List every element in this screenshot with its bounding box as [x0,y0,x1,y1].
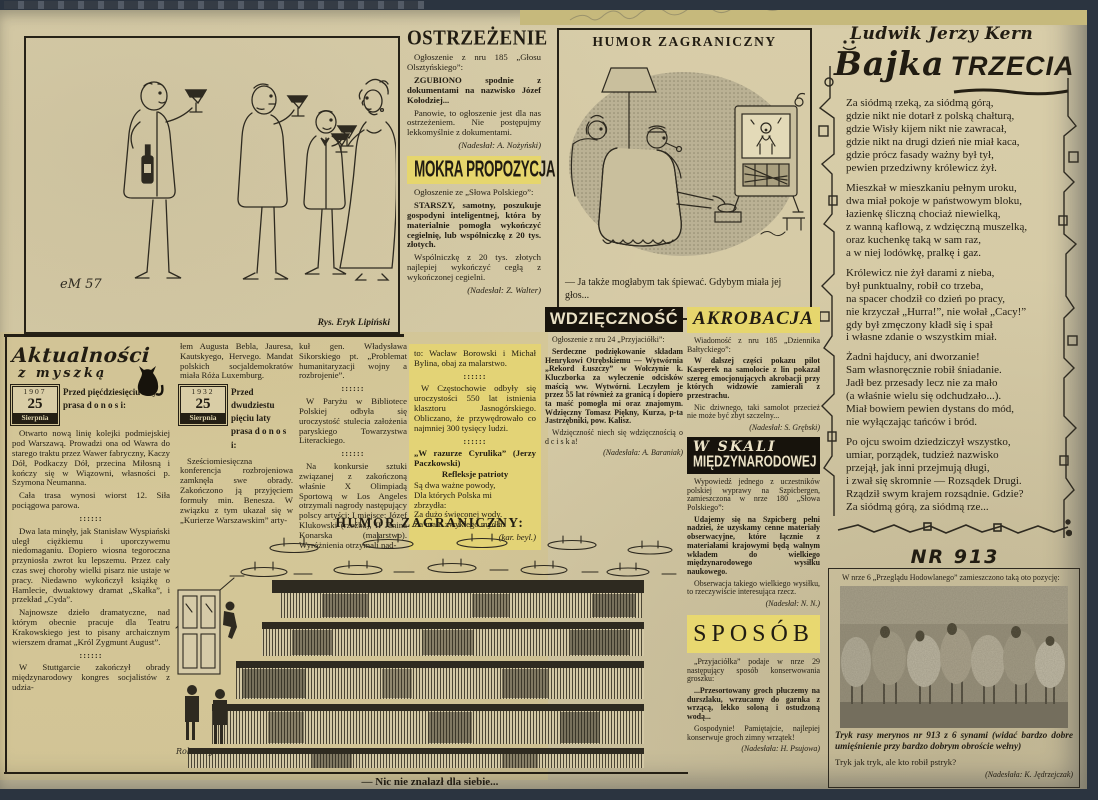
cartoon-credit: Rys. Eryk Lipiński [318,318,390,328]
aktualnosci-col2: łem Augusta Bebla, Jauresa, Kautskyego, … [180,342,293,528]
akrobacja-p2: Nic dziwnego, taki samolot przecież nie … [687,404,820,421]
akrobacja-intro: Wiadomość z nru 185 „Dziennika Bałtyckie… [687,337,820,354]
col1-p2: Cała trasa wynosi wiorst 12. Siła pociąg… [12,491,170,511]
mokra-title: MOKRA PROPOZYCJA [414,157,555,183]
wdziecznosc-credit: (Nadesłała: A. Baraniak) [545,449,683,458]
col2-p2: Sześciomiesięczna konferencja rozbrojeni… [180,457,293,526]
ostrzezenie-title: OSTRZEŻENIE [407,27,541,51]
sposob-credit: (Nadesłała: H. Psujowa) [687,745,820,754]
date-badge: 1932 25 Sierpnia [180,386,226,424]
humor-tv-box: HUMOR ZAGRANICZNY [557,28,812,320]
wdziecznosc-title: WDZIĘCZNOŚĆ [545,307,683,332]
col2-p1: łem Augusta Bebla, Jauresa, Kautskyego, … [180,342,293,381]
mokra-body: Wspólniczkę z 20 tys. złotych najlepiej … [407,253,541,282]
date-badge-row-1932: 1932 25 Sierpnia Przed dwudziestu pięciu… [180,386,293,451]
store-cartoon-caption: — Nic nie znalazł dla siebie... [250,776,610,788]
w-skali-title-line2: MIĘDZYNARODOWEJ [693,454,816,471]
smiley-face-icon [840,38,860,52]
separator: :::::: [12,514,170,524]
col4-p1: to: Wacław Borowski i Michał Bylina, oba… [414,349,536,369]
zigzag-bottom-icon [836,520,1072,538]
verse-subtitle: Refleksje patrioty [414,470,536,480]
newspaper-scan-page: eM 57 Rys. Eryk Lipiński OSTRZEŻENIE Ogł… [0,0,1098,800]
col1-p4: Najnowsze dzieło dramatyczne, nad którym… [12,608,170,647]
wdziecznosc-p2: Wdzięczność niech się wdzięcznością o d … [545,429,683,446]
w-skali-credit: (Nadesłał: N. N.) [687,600,820,609]
mokra-credit: (Nadesłał: Z. Walter) [407,286,541,296]
stanza-4: Żadni hajducy, ani dworzanie! Sam własno… [846,351,1062,429]
w-skali-p2: Udajemy się na Szpicberg pełni nadziei, … [687,516,820,577]
ostrzezenie-credit: (Nadesłał: A. Nożyński) [407,141,541,151]
wdziecznosc-p1: Serdeczne podziękowanie składam Henrykow… [545,348,683,426]
horizontal-rule-top [4,334,404,337]
ostrzezenie-body: Panowie, to ogłoszenie jest dla nas ostr… [407,109,541,138]
bajka-poem: Za siódmą rzeką, za siódmą górą, gdzie n… [846,97,1062,514]
newspaper-clipping: eM 57 Rys. Eryk Lipiński OSTRZEŻENIE Ogł… [0,10,1087,789]
store-artist-signature: Robt Day [175,747,214,756]
col1-p3: Dwa lata minęły, jak Stanisław Wyspiańsk… [12,527,170,606]
sposob-title: SPOSÓB [687,615,820,653]
sposob-p1: „Przyjaciółka” podaje w nrze 29 następuj… [687,658,820,684]
bajka-section: Ludwik Jerzy Kern BajkaTRZECIA Za siódmą… [820,24,1088,521]
cat-silhouette-icon [134,362,164,400]
badge-day: 25 [181,397,225,412]
w-skali-title-box: W SKALI MIĘDZYNARODOWEJ [687,437,820,474]
akrobacja-p1: W dalszej części pokazu pilot Kasperek n… [687,357,820,400]
ostrzezenie-section: OSTRZEŻENIE Ogłoszenie z nru 185 „Głosu … [407,28,541,299]
mokra-intro: Ogłoszenie ze „Słowa Polskiego”: [407,188,541,198]
col4-p2: W Częstochowie odbyły się uroczystości 5… [414,384,536,433]
nr913-punchline: Tryk jak tryk, ale kto robił pstryk? [835,758,1073,768]
separator: :::::: [299,384,407,394]
stanza-1: Za siódmą rzeką, za siódmą górą, gdzie n… [846,97,1062,175]
nr913-intro: W nrze 6 „Przeglądu Hodowlanego” zamiesz… [835,574,1073,583]
humor-store-header: HUMOR ZAGRANICZNY: [280,515,580,531]
col1-p1: Otwarto nową linię kolejki podmiejskiej … [12,429,170,488]
w-skali-p1: Wypowiedź jednego z uczestników polskiej… [687,478,820,513]
verse-title: „W razurze Cyrulika” (Jerzy Paczkowski) [414,449,536,469]
nr913-title: NR 913 [860,546,1050,568]
aktualnosci-logo-line2: z myszką [18,367,107,382]
aktualnosci-logo-line1: Aktualności [11,344,151,367]
vertical-rule-left [5,336,7,772]
artist-monogram: eM 57 [60,277,102,292]
aktualnosci-col1: Aktualności z myszką 1907 25 Sierpnia Pr… [12,342,170,696]
stanza-3: Królewicz nie żył darami z nieba, był pu… [846,267,1062,345]
toast-cartoon-drawing: eM 57 [26,38,396,306]
cut-off-header-strip [4,1,424,9]
pencil-handwriting-icon [560,10,920,25]
wdziecznosc-intro: Ogłoszenie z nru 24 „Przyjaciółki”: [545,336,683,345]
aktualnosci-logo: Aktualności z myszką [12,344,170,381]
sheep-photo [840,586,1068,728]
title-underline-icon [952,88,1072,96]
col1-p5: W Stuttgarcie zakończył obrady międzynar… [12,663,170,692]
tv-cartoon-caption: — Ja także mogłabym tak śpiewać. Gdybym … [565,277,804,302]
col3-p2: W Paryżu w Bibliotece Polskiej odbyła si… [299,397,407,446]
bajka-title: BajkaTRZECIA [834,44,1088,83]
nr913-photo-caption: Tryk rasy merynos nr 913 z 6 synami (wid… [835,731,1073,753]
stanza-5: Po ojcu swoim dziedziczył wszystko, umia… [846,436,1062,514]
mokra-title-bar: MOKRA PROPOZYCJA [407,156,541,184]
separator: :::::: [414,437,536,447]
date-badge: 1907 25 Sierpnia [12,386,58,424]
nr913-credit: (Nadesłała: K. Jędrzejczak) [835,771,1073,780]
w-skali-p3: Obserwacja takiego wielkiego wysiłku, to… [687,580,820,597]
col3-p1: kuł gen. Władysława Sikorskiego pt. „Pro… [299,342,407,381]
akrobacja-column: AKROBACJA Wiadomość z nru 185 „Dziennika… [687,307,820,757]
akrobacja-title: AKROBACJA [687,307,820,333]
badge-month: Sierpnia [181,413,225,423]
toast-cartoon-box: eM 57 Rys. Eryk Lipiński [24,36,400,334]
badge-month: Sierpnia [13,413,57,423]
bajka-author: Ludwik Jerzy Kern [850,24,1088,44]
sposob-p2: ...Przesortowany groch płuczemy na dursz… [687,687,820,722]
separator: :::::: [414,372,536,382]
separator: :::::: [299,449,407,459]
humor-tv-title: HUMOR ZAGRANICZNY [565,34,804,50]
ostrzezenie-bold: ZGUBIONO spodnie z dokumentami na nazwis… [407,76,541,105]
top-paper-edge-band [520,10,1087,25]
tv-cartoon-drawing [565,52,805,274]
mokra-bold: STARSZY, samotny, poszukuje gospodyni in… [407,201,541,250]
akrobacja-credit: (Nadesłał: S. Grębski) [687,424,820,433]
separator: :::::: [12,651,170,661]
badge-day: 25 [13,397,57,412]
zigzag-right-icon [1056,76,1082,546]
wdziecznosc-section: WDZIĘCZNOŚĆ Ogłoszenie z nru 24 „Przyjac… [545,307,683,461]
store-cartoon-drawing: Robt Day [172,532,688,768]
stanza-2: Mieszkał w mieszkaniu pełnym uroku, dwa … [846,182,1062,260]
ostrzezenie-intro: Ogłoszenie z nru 185 „Głosu Olsztyńskieg… [407,53,541,73]
lead-1932: Przed dwudziestu pięciu laty prasa d o n… [231,386,293,451]
horizontal-rule-bottom [4,772,688,774]
nr913-box: W nrze 6 „Przeglądu Hodowlanego” zamiesz… [828,568,1080,788]
sposob-p3: Gospodynie! Pamiętajcie, najlepiej konse… [687,725,820,742]
